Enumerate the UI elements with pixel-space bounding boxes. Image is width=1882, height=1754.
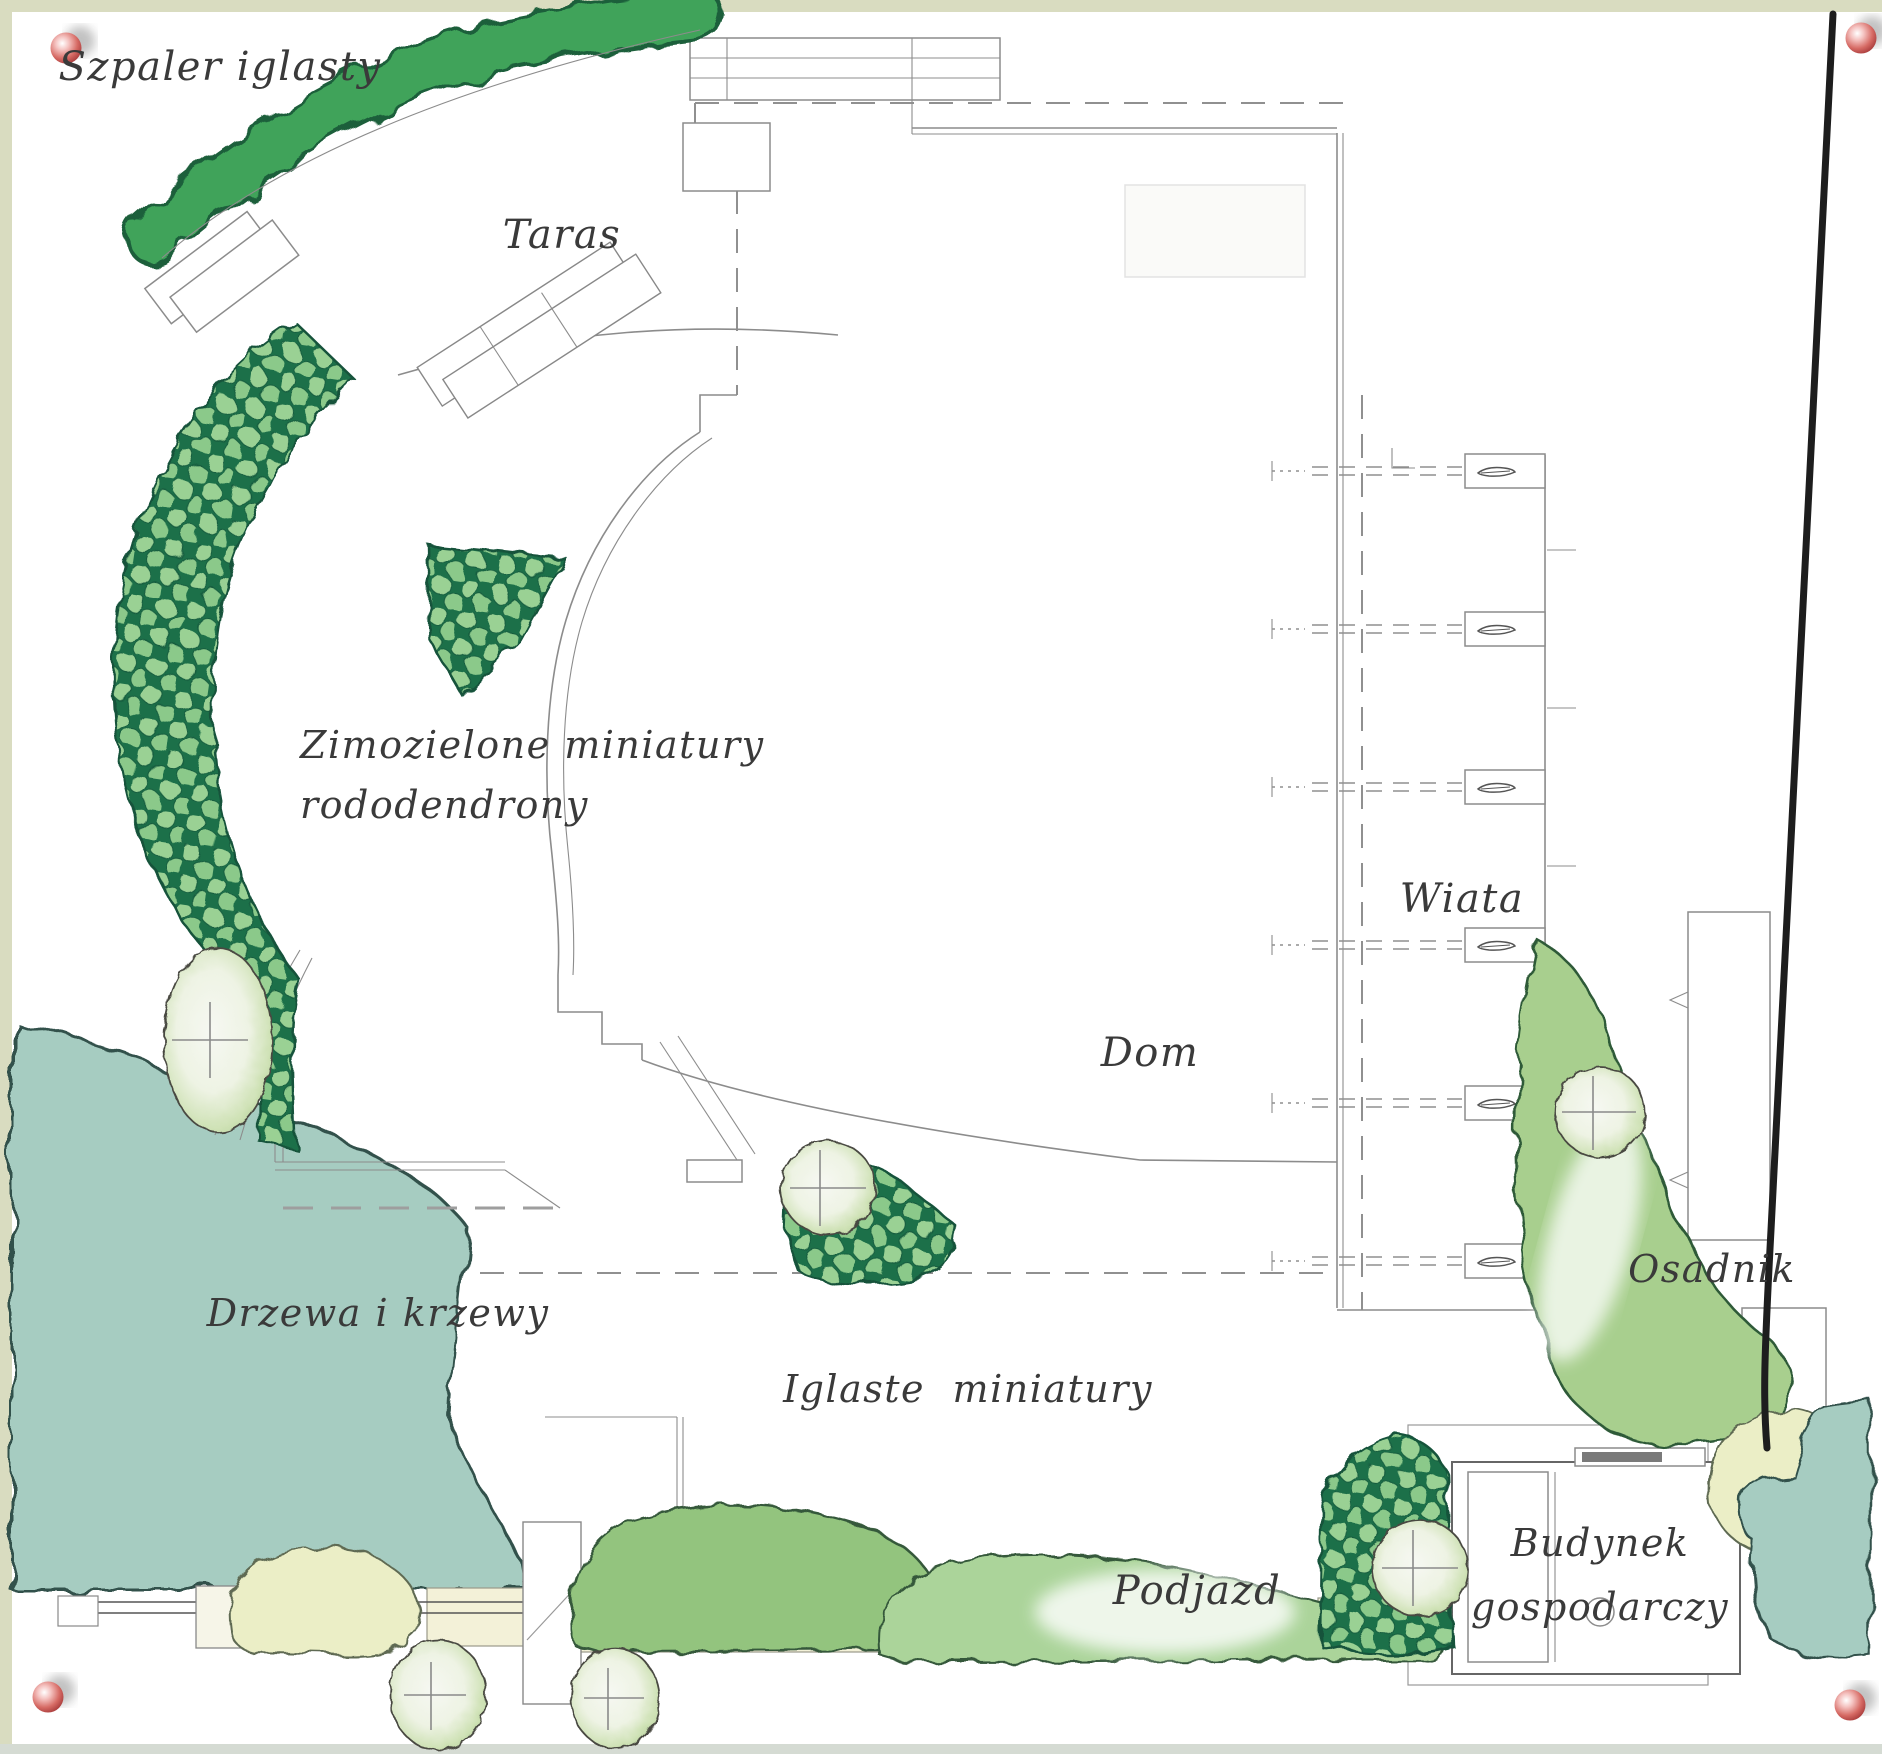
- label-drzewa-i-krzewy: Drzewa i krzewy: [206, 1291, 550, 1335]
- tree-circle-right: [1555, 1067, 1645, 1157]
- top-border-strip: [0, 0, 1882, 12]
- tree-circle-bottom-2: [571, 1648, 659, 1748]
- pin-icon: [1835, 1690, 1866, 1721]
- left-border-strip: [0, 0, 12, 1744]
- fence-post: [58, 1596, 98, 1626]
- tree-circle-left: [164, 948, 272, 1132]
- tree-circle-center: [781, 1141, 875, 1235]
- house-interior-faint-room: [1125, 185, 1305, 277]
- outbuilding-door: [1582, 1452, 1662, 1462]
- terrace-landing: [683, 123, 770, 191]
- label-podjazd: Podjazd: [1112, 1568, 1281, 1614]
- label-budynek-line2: gospodarczy: [1471, 1585, 1729, 1629]
- label-budynek-line1: Budynek: [1510, 1521, 1690, 1565]
- garden-plan-canvas: Szpaler iglasty Taras Zimozielone miniat…: [0, 0, 1882, 1754]
- bottom-border-strip: [0, 1744, 1882, 1754]
- tree-circle-bottom-1: [390, 1640, 486, 1750]
- label-taras: Taras: [503, 212, 621, 258]
- tree-circle-outbuilding: [1372, 1520, 1468, 1616]
- label-szpaler-iglasty: Szpaler iglasty: [59, 44, 382, 90]
- label-dom: Dom: [1100, 1030, 1200, 1076]
- label-wiata: Wiata: [1400, 876, 1524, 922]
- garden-plan-drawing: Szpaler iglasty Taras Zimozielone miniat…: [0, 0, 1882, 1754]
- label-osadnik: Osadnik: [1628, 1247, 1796, 1291]
- label-zimozielone-line2: rododendrony: [300, 783, 589, 827]
- label-iglaste-miniatury: Iglaste miniatury: [782, 1367, 1153, 1411]
- pin-icon: [1846, 23, 1877, 54]
- pin-icon: [33, 1682, 64, 1713]
- label-zimozielone-line1: Zimozielone miniatury: [299, 723, 765, 767]
